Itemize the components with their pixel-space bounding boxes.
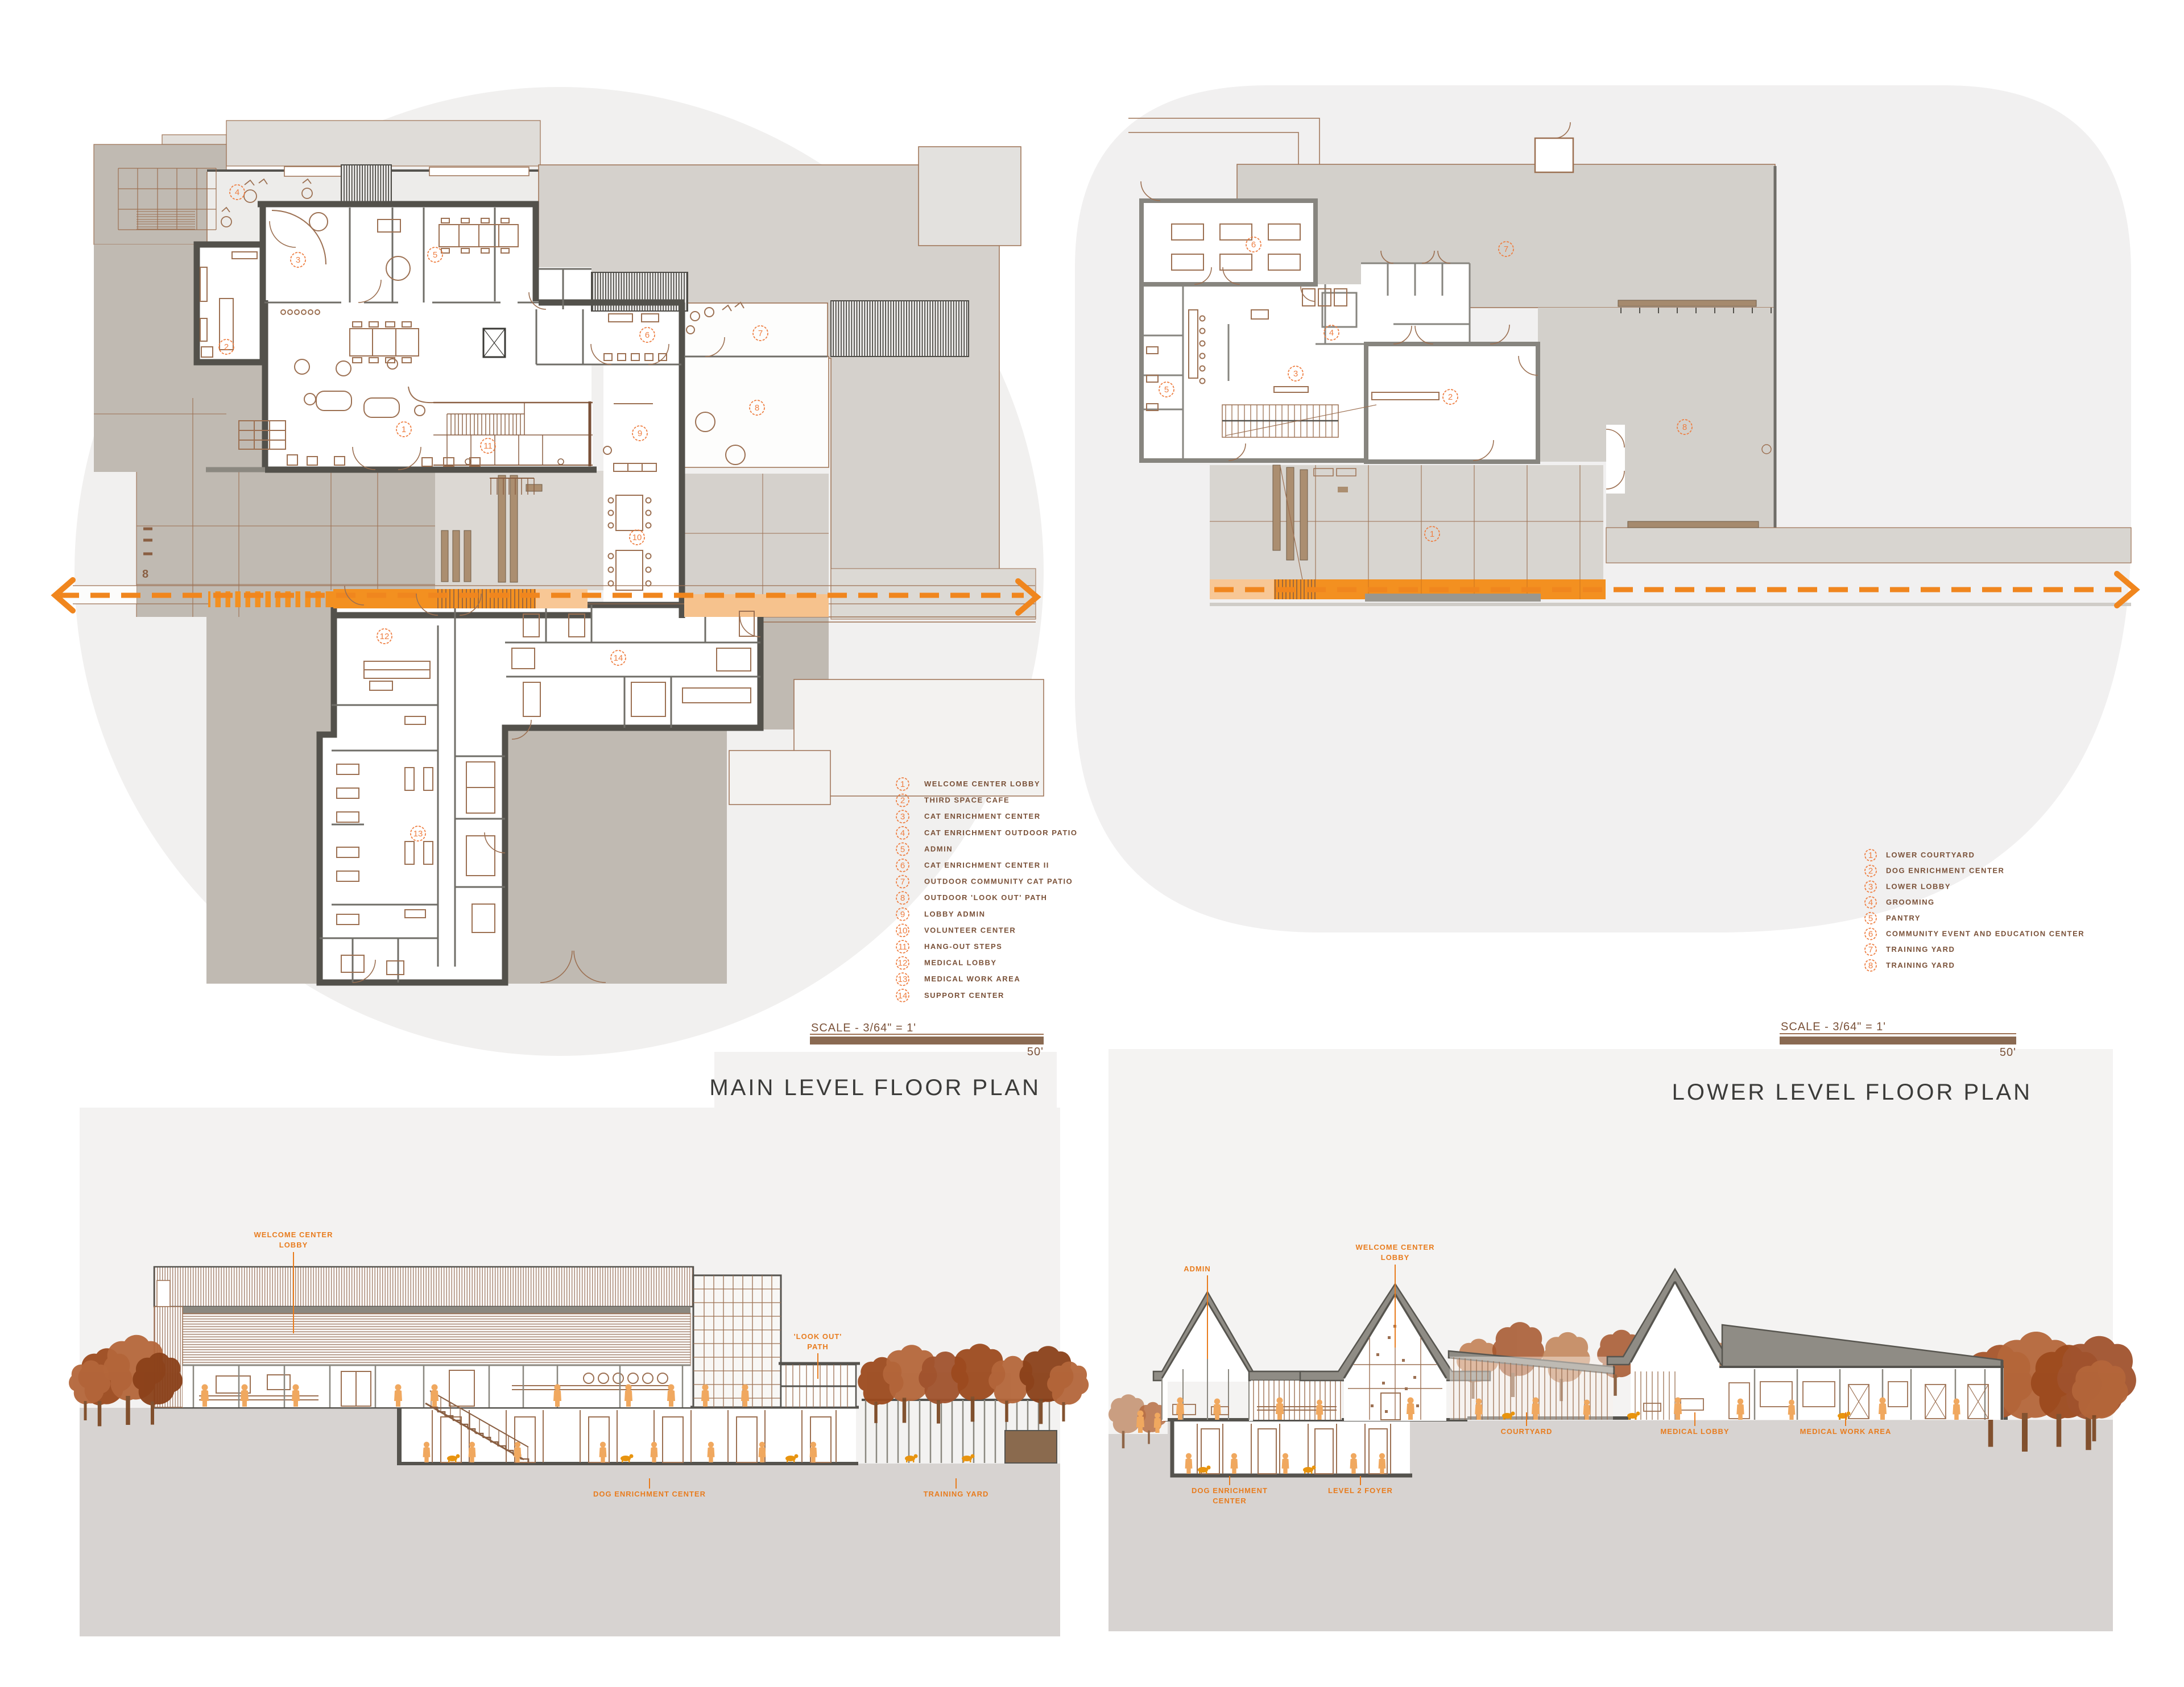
svg-text:8: 8 — [1868, 961, 1873, 971]
svg-text:'LOOK OUT': 'LOOK OUT' — [794, 1332, 842, 1341]
svg-text:5: 5 — [433, 250, 437, 260]
svg-text:PATH: PATH — [807, 1342, 828, 1351]
svg-text:WELCOME CENTER LOBBY: WELCOME CENTER LOBBY — [924, 780, 1040, 788]
svg-text:CAT ENRICHMENT CENTER: CAT ENRICHMENT CENTER — [924, 812, 1041, 820]
svg-text:COURTYARD: COURTYARD — [1501, 1427, 1553, 1436]
svg-text:5: 5 — [900, 844, 905, 854]
svg-text:THIRD SPACE CAFE: THIRD SPACE CAFE — [924, 796, 1010, 805]
svg-text:WELCOME CENTER: WELCOME CENTER — [1356, 1243, 1435, 1251]
svg-text:VOLUNTEER CENTER: VOLUNTEER CENTER — [924, 926, 1016, 934]
svg-text:ADMIN: ADMIN — [924, 844, 953, 853]
svg-text:7: 7 — [758, 329, 763, 338]
svg-text:GROOMING: GROOMING — [1886, 898, 1935, 906]
svg-text:4: 4 — [1868, 898, 1873, 907]
svg-text:7: 7 — [1868, 945, 1873, 955]
svg-text:9: 9 — [638, 429, 642, 438]
svg-text:LEVEL 2 FOYER: LEVEL 2 FOYER — [1328, 1486, 1393, 1495]
svg-text:PANTRY: PANTRY — [1886, 914, 1921, 922]
svg-text:1: 1 — [402, 425, 406, 434]
svg-text:8: 8 — [1682, 422, 1687, 432]
svg-text:CAT ENRICHMENT OUTDOOR PATIO: CAT ENRICHMENT OUTDOOR PATIO — [924, 828, 1078, 837]
svg-text:MEDICAL WORK AREA: MEDICAL WORK AREA — [924, 975, 1020, 983]
svg-text:8: 8 — [755, 403, 759, 413]
svg-text:14: 14 — [898, 991, 908, 1001]
svg-text:LOWER COURTYARD: LOWER COURTYARD — [1886, 851, 1975, 859]
svg-text:6: 6 — [1251, 240, 1256, 250]
svg-text:1: 1 — [1430, 529, 1434, 539]
svg-text:DOG ENRICHMENT CENTER: DOG ENRICHMENT CENTER — [1886, 867, 2004, 875]
svg-text:5: 5 — [1868, 914, 1873, 923]
svg-text:2: 2 — [224, 342, 229, 352]
svg-text:ADMIN: ADMIN — [1184, 1265, 1211, 1273]
svg-text:8: 8 — [900, 893, 905, 903]
svg-text:2: 2 — [1448, 392, 1453, 402]
svg-text:4: 4 — [1329, 328, 1334, 338]
svg-text:DOG ENRICHMENT: DOG ENRICHMENT — [1192, 1486, 1268, 1495]
svg-text:1: 1 — [900, 780, 905, 789]
svg-text:DOG ENRICHMENT CENTER: DOG ENRICHMENT CENTER — [593, 1490, 706, 1498]
svg-text:MAIN LEVEL FLOOR PLAN: MAIN LEVEL FLOOR PLAN — [709, 1075, 1041, 1100]
svg-text:9: 9 — [900, 910, 905, 919]
svg-text:7: 7 — [900, 877, 905, 887]
svg-text:MEDICAL LOBBY: MEDICAL LOBBY — [924, 959, 997, 967]
svg-text:50': 50' — [1027, 1046, 1044, 1058]
svg-text:2: 2 — [900, 796, 905, 806]
svg-text:CAT ENRICHMENT CENTER II: CAT ENRICHMENT CENTER II — [924, 861, 1049, 869]
svg-text:13: 13 — [413, 829, 423, 839]
svg-text:SUPPORT CENTER: SUPPORT CENTER — [924, 991, 1004, 1000]
svg-text:MEDICAL WORK AREA: MEDICAL WORK AREA — [1800, 1427, 1892, 1436]
svg-text:11: 11 — [898, 942, 907, 952]
svg-text:8: 8 — [142, 568, 148, 581]
svg-text:6: 6 — [900, 861, 905, 871]
svg-text:LOBBY ADMIN: LOBBY ADMIN — [924, 910, 986, 918]
svg-text:10: 10 — [632, 533, 642, 542]
svg-text:3: 3 — [900, 812, 905, 822]
svg-text:SCALE - 3/64" = 1': SCALE - 3/64" = 1' — [1781, 1021, 1886, 1033]
svg-text:12: 12 — [380, 632, 390, 641]
svg-text:6: 6 — [1868, 930, 1873, 939]
svg-text:11: 11 — [483, 441, 493, 451]
svg-text:OUTDOOR 'LOOK OUT' PATH: OUTDOOR 'LOOK OUT' PATH — [924, 893, 1047, 902]
svg-text:7: 7 — [1504, 244, 1508, 254]
svg-text:LOBBY: LOBBY — [279, 1241, 308, 1249]
svg-text:TRAINING YARD: TRAINING YARD — [1886, 961, 1955, 969]
svg-text:13: 13 — [898, 975, 908, 984]
svg-text:1: 1 — [1868, 851, 1873, 860]
svg-text:2: 2 — [1868, 867, 1873, 876]
svg-text:5: 5 — [1164, 385, 1169, 395]
svg-text:4: 4 — [900, 828, 905, 838]
svg-text:SCALE - 3/64" = 1': SCALE - 3/64" = 1' — [811, 1022, 916, 1034]
svg-text:LOBBY: LOBBY — [1381, 1253, 1410, 1262]
svg-text:3: 3 — [296, 255, 300, 265]
svg-text:TRAINING YARD: TRAINING YARD — [1886, 945, 1955, 954]
svg-text:TRAINING YARD: TRAINING YARD — [924, 1490, 989, 1498]
svg-text:LOWER LOBBY: LOWER LOBBY — [1886, 882, 1951, 890]
svg-text:6: 6 — [645, 330, 650, 340]
svg-text:MEDICAL LOBBY: MEDICAL LOBBY — [1660, 1427, 1729, 1436]
svg-text:14: 14 — [614, 653, 623, 663]
svg-text:4: 4 — [235, 188, 239, 197]
svg-text:HANG-OUT STEPS: HANG-OUT STEPS — [924, 942, 1002, 951]
svg-text:50': 50' — [2000, 1046, 2016, 1059]
svg-text:LOWER LEVEL FLOOR PLAN: LOWER LEVEL FLOOR PLAN — [1672, 1080, 2032, 1105]
svg-text:10: 10 — [898, 926, 908, 935]
svg-text:OUTDOOR COMMUNITY CAT PATIO: OUTDOOR COMMUNITY CAT PATIO — [924, 877, 1073, 886]
svg-text:3: 3 — [1868, 882, 1873, 892]
svg-text:WELCOME CENTER: WELCOME CENTER — [254, 1230, 333, 1239]
svg-text:CENTER: CENTER — [1213, 1497, 1246, 1505]
svg-text:3: 3 — [1293, 369, 1298, 379]
svg-text:12: 12 — [898, 959, 908, 968]
svg-text:COMMUNITY EVENT AND EDUCATION: COMMUNITY EVENT AND EDUCATION CENTER — [1886, 930, 2084, 938]
